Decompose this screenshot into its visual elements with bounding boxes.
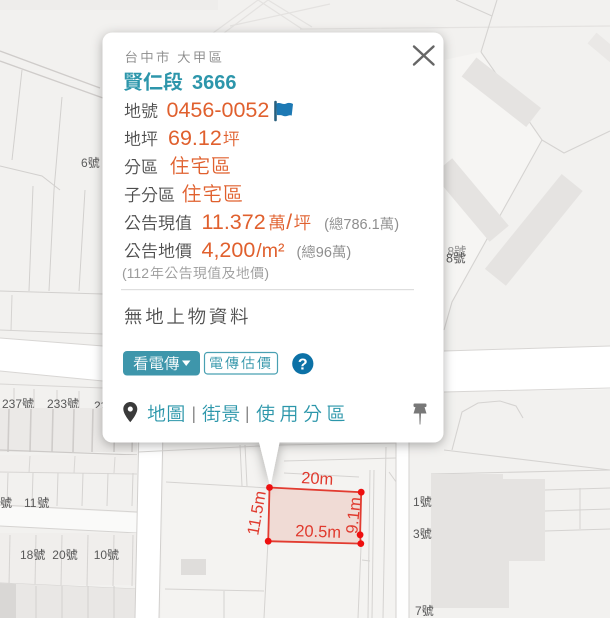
svg-text:(: ( (324, 217, 329, 233)
svg-text:1: 1 (413, 495, 420, 509)
svg-text:18: 18 (20, 548, 34, 562)
svg-text:10: 10 (94, 548, 108, 562)
svg-text:): ) (394, 217, 399, 233)
svg-text:?: ? (298, 357, 308, 374)
svg-text:20.5m: 20.5m (295, 522, 341, 542)
svg-text:): ) (346, 245, 351, 261)
svg-text:20: 20 (52, 548, 66, 562)
svg-text:3666: 3666 (192, 72, 237, 94)
svg-text:7: 7 (415, 604, 422, 618)
svg-text:0456-0052: 0456-0052 (167, 98, 270, 122)
svg-text:9.1m: 9.1m (343, 496, 365, 534)
svg-text:/: / (286, 211, 292, 234)
svg-text:69.12: 69.12 (168, 126, 222, 150)
svg-text:11: 11 (24, 496, 37, 510)
svg-text:786.1: 786.1 (343, 217, 379, 233)
svg-text:|: | (245, 404, 250, 424)
svg-text:11.372: 11.372 (202, 210, 266, 234)
svg-text:8: 8 (446, 252, 453, 266)
svg-text:/m²: /m² (256, 240, 285, 262)
svg-text:): ) (264, 265, 269, 281)
svg-text:4,200: 4,200 (202, 238, 256, 262)
svg-text:20m: 20m (301, 469, 334, 489)
svg-text:3: 3 (413, 527, 420, 541)
svg-text:96: 96 (316, 245, 332, 261)
svg-text:|: | (192, 404, 197, 424)
svg-text:(112: (112 (122, 265, 149, 281)
svg-text:6: 6 (81, 156, 88, 170)
svg-text:(: ( (297, 245, 302, 261)
